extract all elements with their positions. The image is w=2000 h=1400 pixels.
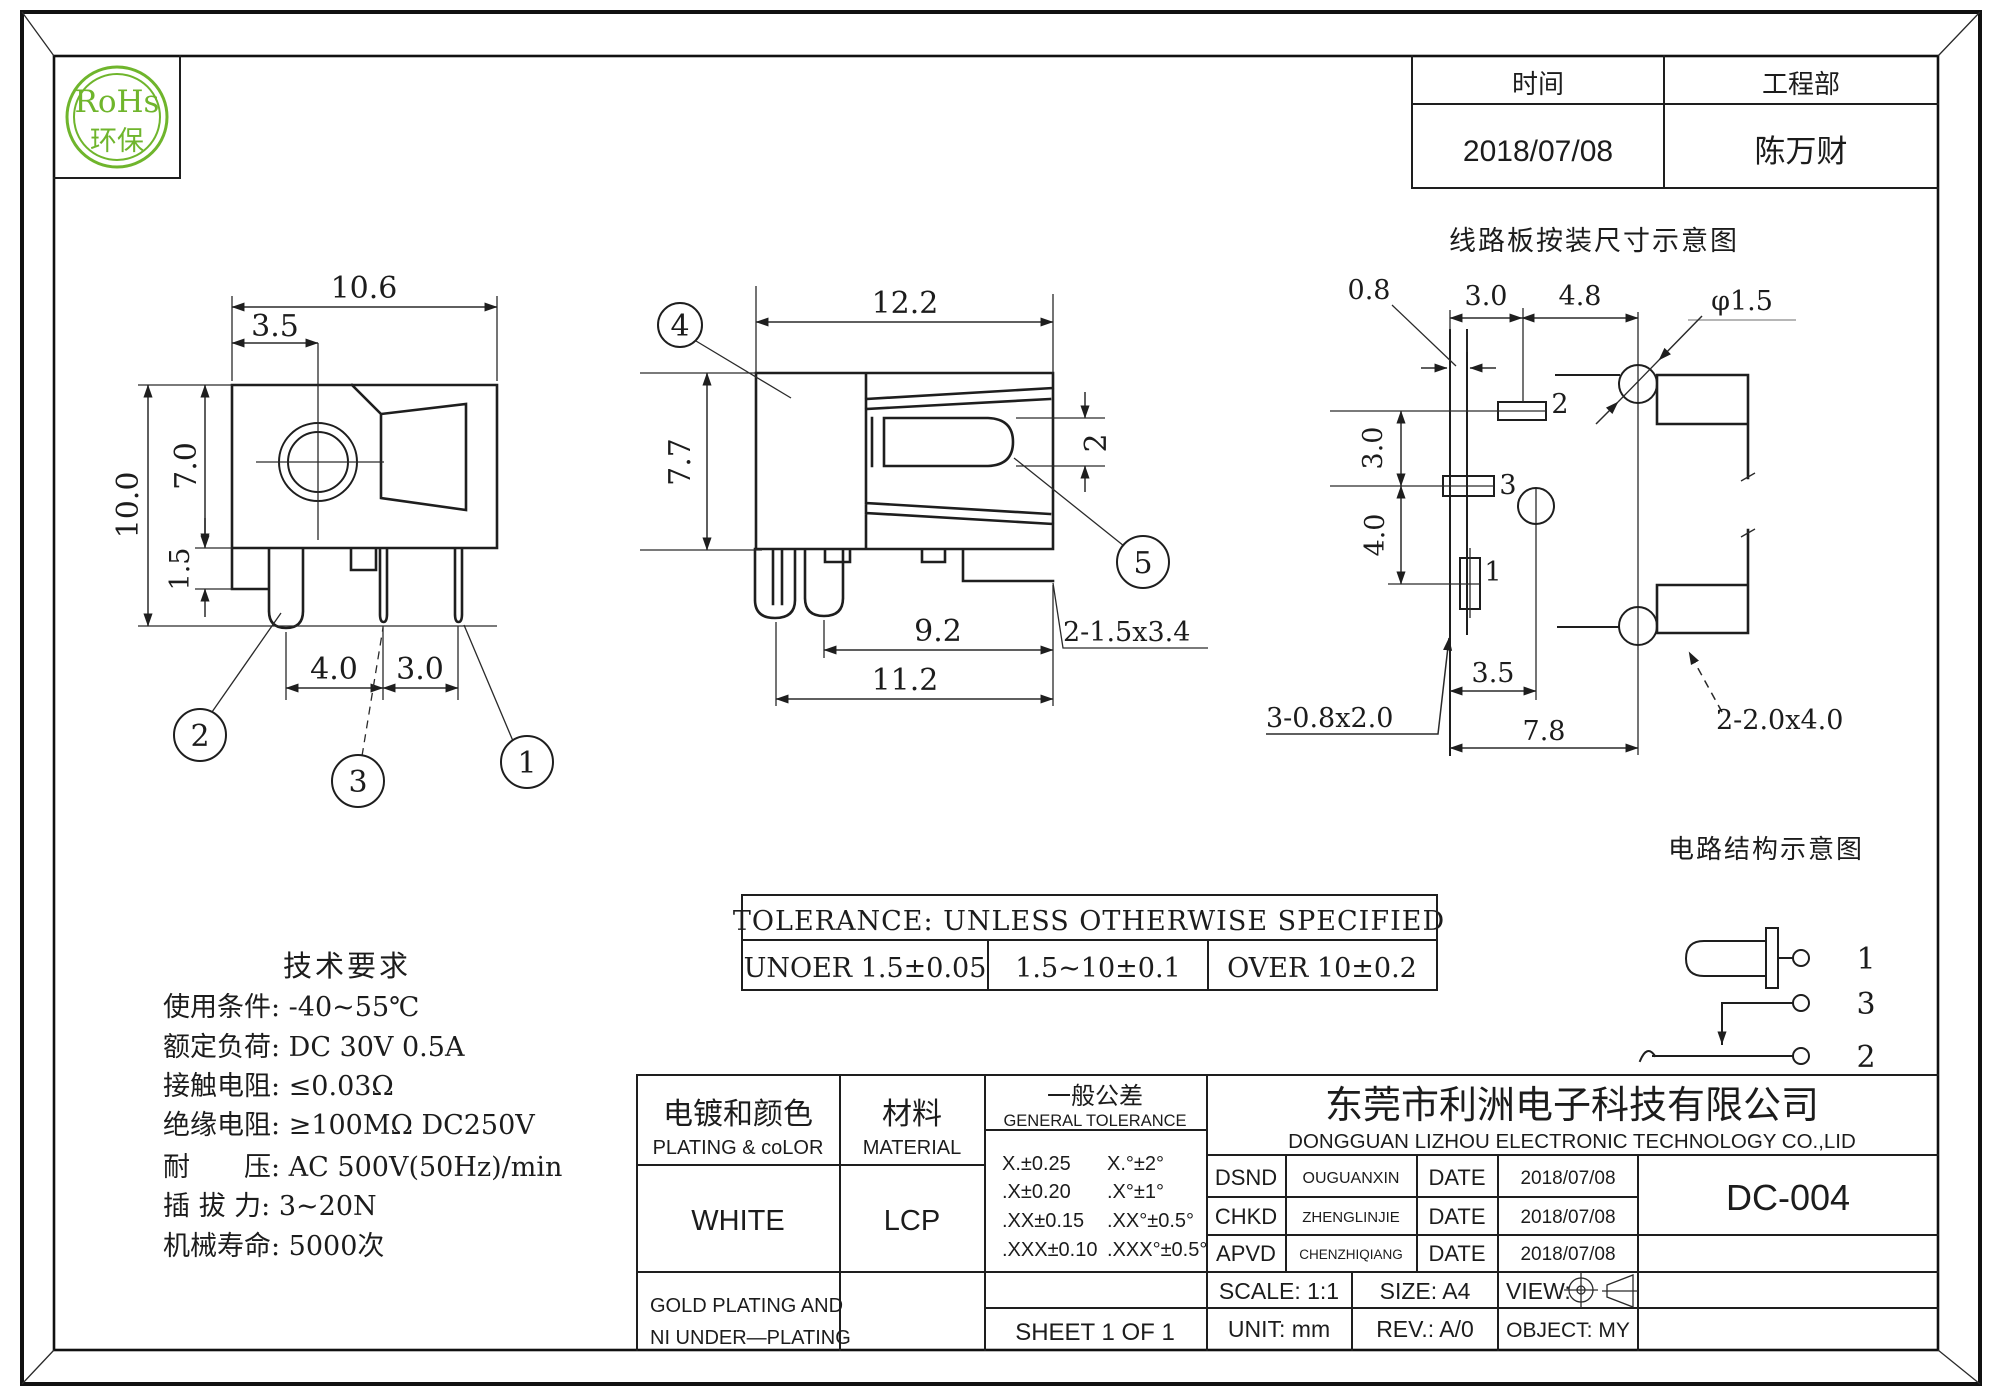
dim-side-width: 12.2 [872, 286, 939, 321]
tech-title: 技术要求 [283, 949, 411, 983]
circuit-diagram: 电路结构示意图 1 3 2 [1640, 834, 1876, 1075]
note-slot: 2-1.5x3.4 [1063, 617, 1190, 648]
gentol-zh: 一般公差 [1047, 1083, 1143, 1110]
callout-1: 1 [517, 746, 536, 781]
plating-note-2: NI UNDER—PLATING [650, 1327, 851, 1349]
part-number: DC-004 [1726, 1177, 1850, 1218]
gentol-r3b: .XX°±0.5° [1107, 1210, 1194, 1232]
rev-cell: REV.: A/0 [1376, 1316, 1474, 1342]
gentol-r2a: .X±0.20 [1002, 1181, 1071, 1203]
approval-date-label-3: DATE [1428, 1241, 1485, 1266]
material-value: LCP [884, 1205, 940, 1237]
terminal-2-label: 2 [1856, 1040, 1875, 1075]
dim-pcb-c: 4.8 [1559, 281, 1602, 312]
dim-side-height: 7.7 [663, 438, 698, 486]
gentol-r4b: .XXX°±0.5° [1107, 1239, 1207, 1261]
side-body-outline [755, 373, 1053, 618]
rohs-label: RoHs [75, 84, 160, 120]
rohs-subtitle: 环保 [90, 126, 144, 157]
tech-line-6: 插 拔 力: 3~20N [163, 1191, 377, 1222]
tolerance-over: OVER 10±0.2 [1227, 953, 1417, 984]
plating-en: PLATING & coLOR [653, 1137, 824, 1159]
note-pcb-pads: 3-0.8x2.0 [1266, 703, 1393, 734]
pad-label-3: 3 [1499, 470, 1516, 501]
callout-3: 3 [348, 765, 367, 800]
terminal-2-node [1793, 1048, 1809, 1064]
dim-side-pin: 2 [1079, 433, 1114, 452]
front-body-outline [232, 385, 497, 628]
first-angle-projection-icon [1564, 1272, 1638, 1308]
tolerance-under: UNOER 1.5±0.05 [744, 953, 987, 984]
pcb-layout-view: 线路板按装尺寸示意图 0.8 3.0 4.8 φ1.5 3.0 4.0 [1266, 226, 1843, 755]
terminal-3-label: 3 [1856, 987, 1875, 1022]
dim-front-pitch-a: 4.0 [310, 652, 358, 687]
approval-role-apvd: APVD [1216, 1241, 1276, 1266]
approval-date-label-1: DATE [1428, 1165, 1485, 1190]
callout-4: 4 [670, 309, 689, 344]
gentol-r3a: .XX±0.15 [1002, 1210, 1084, 1232]
dim-front-body-height: 7.0 [169, 442, 204, 490]
approval-name-apvd: CHENZHIQIANG [1299, 1247, 1403, 1262]
dim-front-offset: 3.5 [251, 309, 299, 344]
unit-cell: UNIT: mm [1228, 1316, 1330, 1342]
approval-date-1: 2018/07/08 [1520, 1168, 1615, 1189]
gentol-r2b: .X°±1° [1107, 1181, 1164, 1203]
note-pcb-slots: 2-2.0x4.0 [1716, 705, 1843, 736]
dept-label: 工程部 [1762, 69, 1840, 99]
tolerance-table: TOLERANCE: UNLESS OTHERWISE SPECIFIED UN… [733, 895, 1445, 990]
circuit-title: 电路结构示意图 [1668, 834, 1864, 864]
tech-line-3: 接触电阻: ≤0.03Ω [163, 1071, 394, 1102]
dim-pcb-b: 3.0 [1465, 281, 1508, 312]
dim-pcb-a: 0.8 [1348, 275, 1391, 306]
approval-date-label-2: DATE [1428, 1204, 1485, 1229]
size-cell: SIZE: A4 [1380, 1278, 1471, 1304]
callout-5: 5 [1133, 546, 1152, 581]
dim-front-total-height: 10.0 [111, 472, 146, 539]
dim-pcb-d: 3.0 [1358, 427, 1389, 470]
plating-value: WHITE [691, 1205, 784, 1237]
gentol-r1a: X.±0.25 [1002, 1153, 1071, 1175]
object-cell: OBJECT: MY [1506, 1319, 1630, 1342]
gentol-r4a: .XXX±0.10 [1002, 1239, 1097, 1261]
dept-value: 陈万财 [1755, 134, 1848, 169]
time-value: 2018/07/08 [1463, 135, 1613, 168]
pad-label-2: 2 [1551, 389, 1568, 420]
drawing-canvas: RoHs 环保 时间 工程部 2018/07/08 陈万财 10.6 3.5 1… [0, 0, 2000, 1400]
callout-2: 2 [190, 719, 209, 754]
rohs-logo: RoHs 环保 [54, 56, 180, 178]
pad-label-1: 1 [1484, 557, 1501, 588]
approval-name-dsnd: OUGUANXIN [1303, 1170, 1400, 1187]
tech-line-1: 使用条件: -40~55℃ [163, 992, 419, 1023]
approval-date-3: 2018/07/08 [1520, 1244, 1615, 1265]
terminal-1-label: 1 [1856, 942, 1875, 977]
dim-front-standoff: 1.5 [165, 548, 196, 591]
material-zh: 材料 [882, 1098, 942, 1131]
engineering-drawing-sheet: RoHs 环保 时间 工程部 2018/07/08 陈万财 10.6 3.5 1… [0, 0, 2000, 1400]
header-table: 时间 工程部 2018/07/08 陈万财 [1412, 56, 1938, 188]
approval-name-chkd: ZHENGLINJIE [1302, 1209, 1400, 1226]
gentol-r1b: X.°±2° [1107, 1153, 1164, 1175]
technical-requirements: 技术要求 使用条件: -40~55℃ 额定负荷: DC 30V 0.5A 接触电… [163, 949, 562, 1262]
approval-role-chkd: CHKD [1215, 1204, 1277, 1229]
plating-note-1: GOLD PLATING AND [650, 1295, 843, 1317]
tolerance-mid: 1.5~10±0.1 [1015, 953, 1180, 984]
dim-pcb-f: 3.5 [1472, 658, 1515, 689]
approval-role-dsnd: DSND [1215, 1165, 1277, 1190]
side-view: 12.2 7.7 2 9.2 11.2 2-1.5x3.4 4 5 [640, 286, 1208, 706]
circuit-pin-symbol [1686, 928, 1793, 988]
material-en: MATERIAL [863, 1137, 962, 1159]
dim-pcb-g: 7.8 [1523, 716, 1566, 747]
dim-pcb-hole: φ1.5 [1711, 286, 1773, 317]
tech-line-7: 机械寿命: 5000次 [163, 1231, 384, 1262]
view-label: VIEW: [1506, 1278, 1571, 1304]
sheet-label: SHEET 1 OF 1 [1015, 1319, 1175, 1346]
dim-front-width: 10.6 [331, 271, 398, 306]
front-view: 10.6 3.5 10.0 7.0 1.5 4.0 3.0 2 3 1 [111, 271, 553, 807]
approval-date-2: 2018/07/08 [1520, 1207, 1615, 1228]
dim-front-pitch-b: 3.0 [396, 652, 444, 687]
tech-line-4: 绝缘电阻: ≥100MΩ DC250V [163, 1110, 535, 1141]
gentol-en: GENERAL TOLERANCE [1003, 1112, 1186, 1130]
title-block: 电镀和颜色 PLATING & coLOR WHITE GOLD PLATING… [637, 1075, 1938, 1350]
tech-line-2: 额定负荷: DC 30V 0.5A [163, 1032, 465, 1063]
time-label: 时间 [1512, 69, 1564, 99]
pcb-title: 线路板按装尺寸示意图 [1449, 226, 1739, 256]
tolerance-title: TOLERANCE: UNLESS OTHERWISE SPECIFIED [733, 906, 1445, 937]
dim-side-len-a: 9.2 [914, 614, 962, 649]
company-name-zh: 东莞市利洲电子科技有限公司 [1325, 1085, 1819, 1127]
company-name-en: DONGGUAN LIZHOU ELECTRONIC TECHNOLOGY CO… [1288, 1130, 1856, 1153]
dim-side-len-b: 11.2 [872, 663, 939, 698]
scale-cell: SCALE: 1:1 [1219, 1278, 1339, 1304]
pcb-board-outline [1657, 375, 1748, 633]
terminal-1-node [1793, 950, 1809, 966]
plating-zh: 电镀和颜色 [663, 1098, 813, 1131]
dim-pcb-e: 4.0 [1360, 514, 1391, 557]
tech-line-5: 耐 压: AC 500V(50Hz)/min [163, 1152, 562, 1183]
terminal-3-node [1793, 995, 1809, 1011]
